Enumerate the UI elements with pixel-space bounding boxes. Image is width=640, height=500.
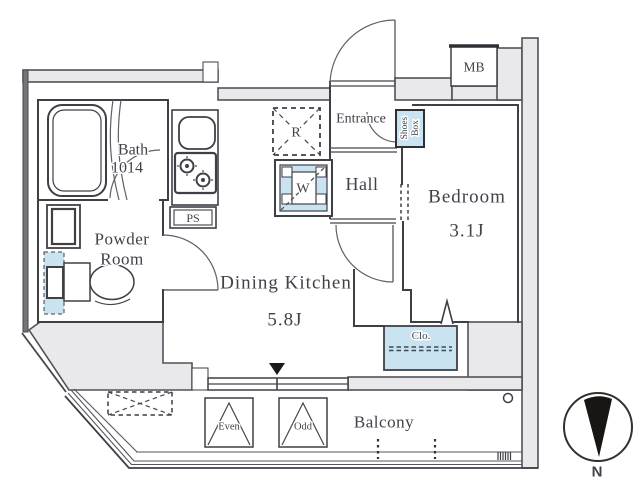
label-mb: MB [463,60,484,75]
label-bedroom: Bedroom [428,187,506,208]
label-powder-1: Powder [95,230,150,249]
entrance-step [330,148,397,152]
wall-south-west [29,322,192,390]
label-bath-size: 1014 [111,160,143,177]
label-bedroom-size: 3.1J [449,221,484,242]
powder-door-arc [163,235,218,290]
wall-north-mid [218,88,330,100]
label-closet: Clo. [412,330,431,342]
entrance-threshold [330,81,395,86]
label-refrigerator: R [291,126,301,141]
label-shoes-box: Box [411,120,421,136]
vanity-inner [52,209,75,244]
wall-south-east [348,377,522,390]
floor-plan: Bath 1014 Powder Room PS Dining Kitchen … [0,0,640,500]
toilet-tank-icon [47,267,63,298]
toilet-cistern [64,263,90,301]
entrance-door-arc [330,20,395,85]
label-dk-size: 5.8J [267,310,302,331]
hall-dk-threshold [330,219,396,223]
toilet-bowl-icon [90,265,134,300]
label-dining-kitchen: Dining Kitchen [220,273,352,294]
label-shoes: Shoes [400,116,410,139]
label-hall: Hall [346,174,379,194]
wall-north-west [23,70,218,82]
partition-marks [378,439,435,459]
label-washer: W [296,182,310,197]
sink-icon [179,117,215,149]
stove-icon [175,153,216,193]
label-bath: Bath [118,142,148,159]
bathtub-inner [53,110,101,191]
label-hatch-odd: Odd [294,422,313,433]
wall-window-pier [192,368,208,390]
compass-icon [564,393,632,461]
label-entrance: Entrance [336,112,386,127]
orientation-marker [269,363,285,375]
label-powder-2: Room [100,250,144,269]
label-ps: PS [186,211,199,225]
wall-pillar [203,62,218,82]
railing-hatch [498,452,511,460]
label-hatch-even: Even [218,422,240,433]
ac-unit-space [108,392,172,415]
wall-north-entry [395,78,452,100]
window-south [208,363,348,390]
wall-ne-corner [497,48,522,100]
bathroom-fixtures [48,105,106,196]
wall-west [23,70,28,332]
north-label: N [592,464,603,481]
closet-door-mark [441,301,453,324]
wall-east [522,38,538,468]
drain-icon [504,394,513,403]
bedroom-sliding-door [401,184,408,222]
label-balcony: Balcony [354,413,414,432]
